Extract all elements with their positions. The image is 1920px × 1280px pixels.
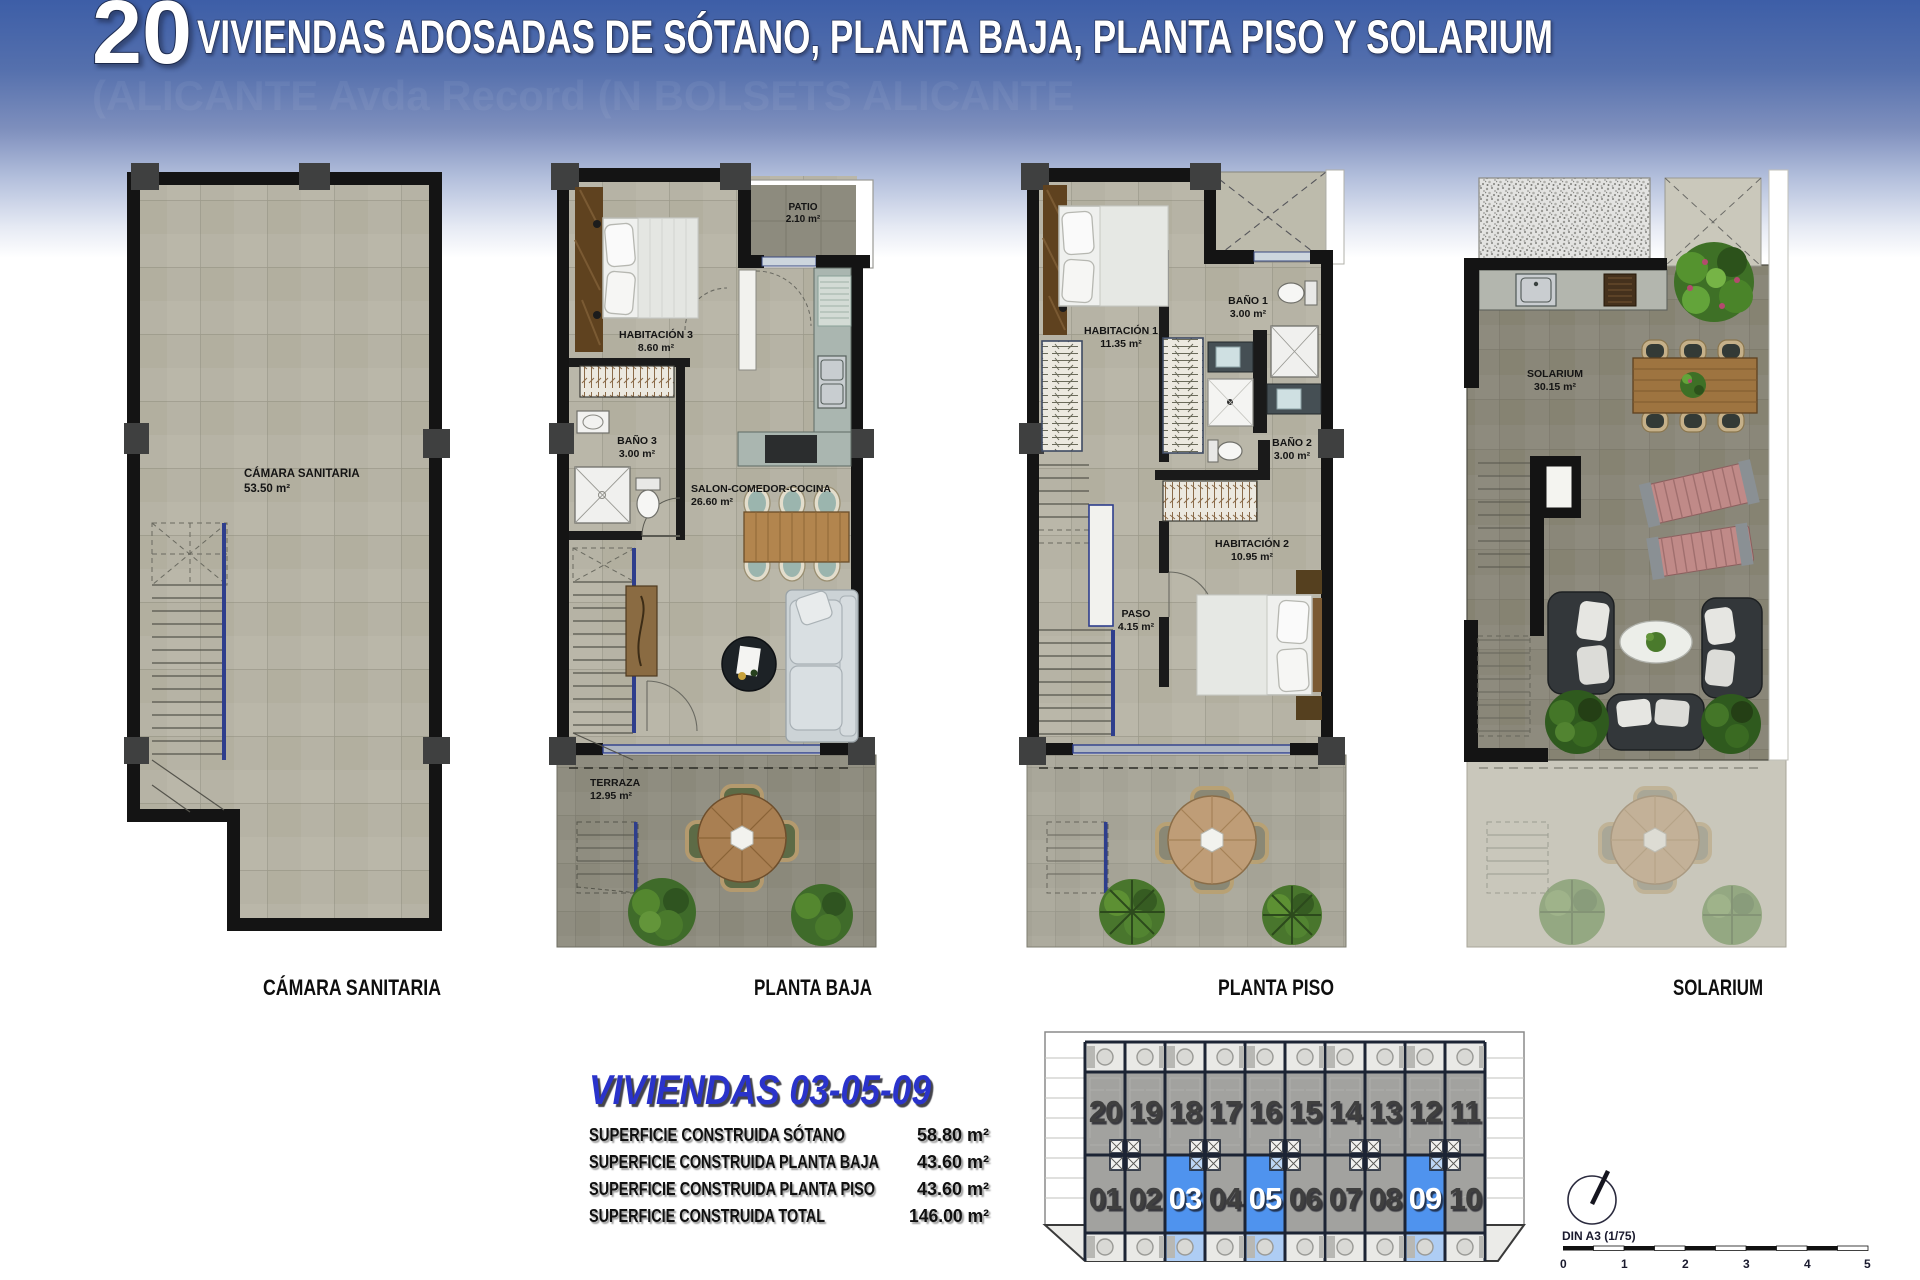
svg-text:11.35 m²: 11.35 m²: [1100, 338, 1142, 350]
svg-text:01: 01: [1089, 1181, 1122, 1216]
svg-text:1: 1: [1621, 1257, 1628, 1271]
svg-text:TERRAZA: TERRAZA: [590, 777, 641, 789]
svg-text:3: 3: [1743, 1257, 1750, 1271]
svg-text:SUPERFICIE CONSTRUIDA PLANTA P: SUPERFICIE CONSTRUIDA PLANTA PISO: [589, 1179, 875, 1199]
svg-text:10.95 m²: 10.95 m²: [1231, 551, 1274, 563]
svg-text:3.00 m²: 3.00 m²: [1230, 308, 1267, 320]
svg-text:12: 12: [1409, 1094, 1441, 1129]
svg-text:15: 15: [1289, 1094, 1322, 1129]
svg-text:2: 2: [1682, 1257, 1689, 1271]
svg-text:43.60 m²: 43.60 m²: [917, 1179, 989, 1199]
svg-text:07: 07: [1329, 1181, 1361, 1216]
svg-text:13: 13: [1369, 1094, 1402, 1129]
svg-text:(ALICANTE Avda Record: (ALICANTE Avda Record (N BOLSETS ALICANT…: [92, 72, 1074, 119]
svg-text:43.60 m²: 43.60 m²: [917, 1152, 989, 1172]
svg-text:VIVIENDAS 03-05-09: VIVIENDAS 03-05-09: [589, 1066, 932, 1113]
svg-text:08: 08: [1369, 1181, 1402, 1216]
svg-text:09: 09: [1409, 1181, 1442, 1216]
svg-text:BAÑO 1: BAÑO 1: [1228, 294, 1268, 307]
svg-text:3.00 m²: 3.00 m²: [619, 448, 656, 460]
svg-text:BAÑO 2: BAÑO 2: [1272, 436, 1312, 449]
svg-text:0: 0: [1560, 1257, 1567, 1271]
svg-text:19: 19: [1129, 1094, 1162, 1129]
svg-text:SOLARIUM: SOLARIUM: [1527, 368, 1583, 380]
svg-text:SUPERFICIE CONSTRUIDA TOTAL: SUPERFICIE CONSTRUIDA TOTAL: [589, 1206, 825, 1226]
svg-text:18: 18: [1169, 1094, 1202, 1129]
svg-text:10: 10: [1449, 1181, 1481, 1216]
svg-text:3.00 m²: 3.00 m²: [1274, 450, 1311, 462]
svg-text:16: 16: [1249, 1094, 1282, 1129]
svg-text:VIVIENDAS ADOSADAS DE SÓTANO,: VIVIENDAS ADOSADAS DE SÓTANO, PLANTA BAJ…: [197, 10, 1553, 63]
svg-text:146.00 m²: 146.00 m²: [909, 1206, 989, 1226]
svg-text:HABITACIÓN 1: HABITACIÓN 1: [1084, 324, 1158, 337]
svg-text:2.10 m²: 2.10 m²: [786, 214, 821, 225]
svg-text:DIN A3 (1/75): DIN A3 (1/75): [1562, 1229, 1636, 1243]
svg-text:PLANTA PISO: PLANTA PISO: [1218, 975, 1334, 1000]
svg-text:03: 03: [1169, 1181, 1202, 1216]
svg-text:SUPERFICIE CONSTRUIDA SÓTANO: SUPERFICIE CONSTRUIDA SÓTANO: [589, 1124, 845, 1145]
svg-text:11: 11: [1450, 1094, 1482, 1129]
svg-text:02: 02: [1129, 1181, 1161, 1216]
svg-text:PATIO: PATIO: [788, 202, 817, 213]
svg-text:05: 05: [1249, 1181, 1282, 1216]
svg-text:CÁMARA SANITARIA: CÁMARA SANITARIA: [244, 467, 360, 480]
svg-text:4: 4: [1804, 1257, 1811, 1271]
svg-text:SALON-COMEDOR-COCINA: SALON-COMEDOR-COCINA: [691, 483, 831, 495]
svg-text:CÁMARA SANITARIA: CÁMARA SANITARIA: [263, 975, 441, 1000]
svg-text:PASO: PASO: [1122, 608, 1151, 620]
svg-text:SUPERFICIE CONSTRUIDA PLANTA B: SUPERFICIE CONSTRUIDA PLANTA BAJA: [589, 1152, 879, 1172]
svg-text:8.60 m²: 8.60 m²: [638, 342, 675, 354]
svg-text:SOLARIUM: SOLARIUM: [1673, 975, 1763, 1000]
svg-text:04: 04: [1209, 1181, 1243, 1216]
svg-text:PLANTA BAJA: PLANTA BAJA: [754, 975, 872, 1000]
svg-text:06: 06: [1289, 1181, 1322, 1216]
svg-text:5: 5: [1864, 1257, 1871, 1271]
svg-text:HABITACIÓN 2: HABITACIÓN 2: [1215, 537, 1289, 550]
svg-text:26.60 m²: 26.60 m²: [691, 496, 734, 508]
svg-text:53.50 m²: 53.50 m²: [244, 483, 290, 495]
svg-text:12.95 m²: 12.95 m²: [590, 790, 633, 802]
svg-text:14: 14: [1329, 1094, 1363, 1129]
svg-text:58.80 m²: 58.80 m²: [917, 1125, 989, 1145]
svg-text:17: 17: [1209, 1094, 1241, 1129]
svg-text:BAÑO 3: BAÑO 3: [617, 434, 657, 447]
svg-text:30.15 m²: 30.15 m²: [1534, 381, 1577, 393]
svg-text:4.15 m²: 4.15 m²: [1118, 621, 1155, 633]
svg-text:HABITACIÓN 3: HABITACIÓN 3: [619, 328, 693, 341]
svg-text:20: 20: [92, 0, 192, 83]
svg-text:20: 20: [1089, 1094, 1121, 1129]
